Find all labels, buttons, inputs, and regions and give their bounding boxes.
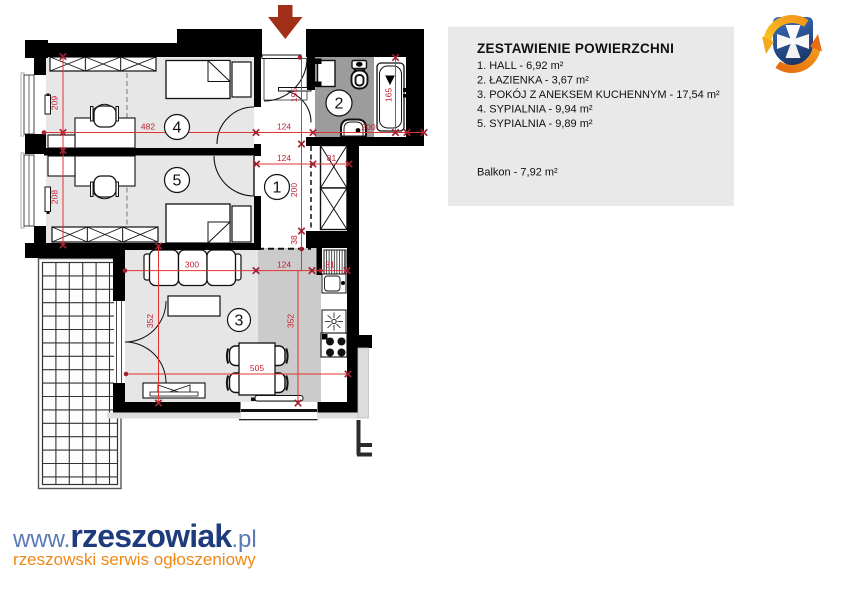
- svg-text:352: 352: [145, 314, 155, 328]
- svg-text:81: 81: [327, 153, 337, 163]
- svg-text:482: 482: [141, 122, 155, 132]
- svg-text:81: 81: [325, 260, 335, 270]
- svg-text:300: 300: [185, 260, 199, 270]
- svg-text:505: 505: [250, 363, 264, 373]
- svg-text:Balkon - 7,92 m²: Balkon - 7,92 m²: [477, 167, 558, 179]
- svg-text:352: 352: [286, 314, 296, 328]
- svg-text:2: 2: [335, 96, 344, 113]
- svg-text:124: 124: [277, 260, 291, 270]
- svg-text:124: 124: [277, 122, 291, 132]
- svg-text:200: 200: [361, 122, 375, 132]
- svg-text:5. SYPIALNIA - 9,89 m²: 5. SYPIALNIA - 9,89 m²: [477, 118, 593, 130]
- svg-text:208: 208: [50, 190, 60, 204]
- svg-text:195: 195: [289, 88, 299, 102]
- svg-text:124: 124: [277, 153, 291, 163]
- svg-text:ZESTAWIENIE POWIERZCHNI: ZESTAWIENIE POWIERZCHNI: [477, 41, 674, 56]
- svg-text:2. ŁAZIENKA - 3,67 m²: 2. ŁAZIENKA - 3,67 m²: [477, 75, 589, 87]
- svg-text:3. POKÓJ Z ANEKSEM KUCHENNYM -: 3. POKÓJ Z ANEKSEM KUCHENNYM - 17,54 m²: [477, 88, 720, 101]
- svg-text:38: 38: [289, 235, 299, 245]
- svg-text:165: 165: [384, 88, 394, 102]
- svg-text:209: 209: [50, 96, 60, 110]
- svg-text:4: 4: [173, 120, 182, 137]
- svg-text:4. SYPIALNIA - 9,94 m²: 4. SYPIALNIA - 9,94 m²: [477, 104, 593, 116]
- svg-text:1. HALL - 6,92 m²: 1. HALL - 6,92 m²: [477, 60, 564, 72]
- svg-text:200: 200: [289, 183, 299, 197]
- svg-text:5: 5: [173, 173, 182, 190]
- svg-text:1: 1: [273, 180, 282, 197]
- svg-text:3: 3: [235, 313, 244, 330]
- svg-text:rzeszowski serwis ogłoszeniowy: rzeszowski serwis ogłoszeniowy: [13, 550, 256, 569]
